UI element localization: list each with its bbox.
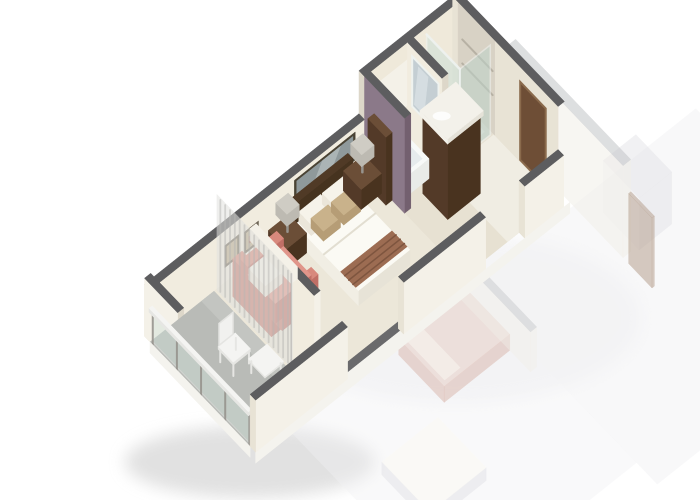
- page: { "scene": { "kind": "isometric-3d-floor…: [0, 0, 700, 500]
- purple-partition-wall-side: [405, 113, 411, 213]
- corridor-side-wall-front: [519, 181, 525, 239]
- scene-layers: [125, 0, 700, 500]
- sink-basin: [433, 112, 451, 121]
- bedroom-right-wall-front: [398, 277, 404, 335]
- ghost-door-brown-side: [652, 216, 654, 288]
- wood-column-side: [386, 132, 392, 205]
- parapet-wall-front: [250, 394, 256, 452]
- floorplan-stage: [0, 0, 700, 500]
- ghost-low-wall-side: [531, 327, 537, 372]
- floorplan-3d-render: [0, 0, 700, 500]
